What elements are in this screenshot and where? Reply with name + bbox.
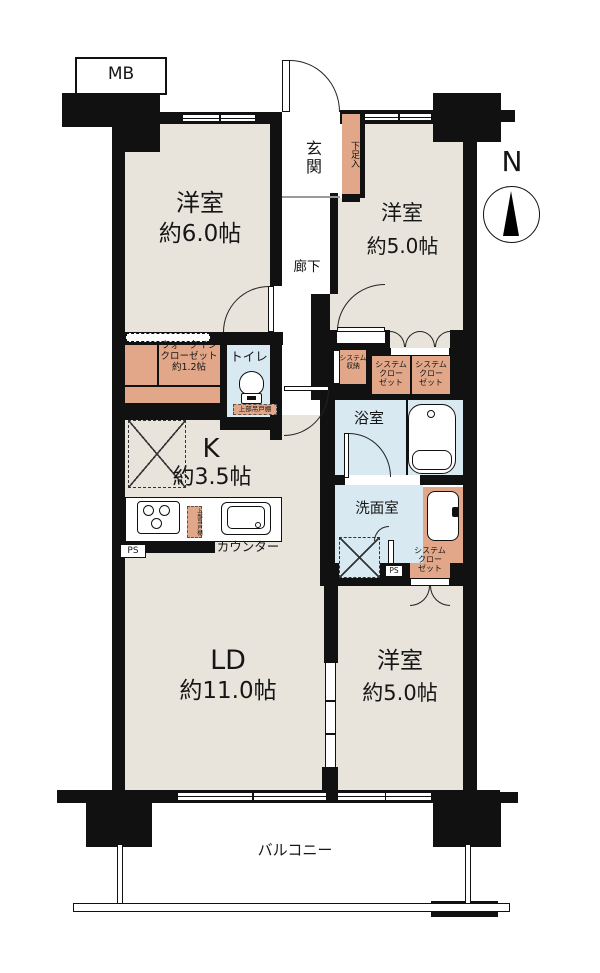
ps-right-label: PS bbox=[385, 567, 403, 576]
living-name: LD bbox=[194, 646, 262, 677]
wall-wic-bottom bbox=[112, 403, 227, 420]
toilet-bowl bbox=[239, 371, 264, 395]
wall-bedroom-ne-bottom-a bbox=[311, 330, 337, 343]
stove-burner-2 bbox=[159, 505, 170, 516]
kitchen-name: K bbox=[195, 435, 227, 465]
sliding-partition bbox=[325, 663, 336, 767]
wash-basin-faucet bbox=[452, 507, 459, 517]
pillar-bottom-right bbox=[433, 803, 501, 847]
pillar-bottom-left bbox=[86, 803, 152, 847]
washroom-door-leaf bbox=[388, 540, 394, 564]
closet-ne-door-strip bbox=[390, 347, 450, 356]
floor-plan: MB 上部吊戸棚 上部吊戸棚 PS PS bbox=[0, 0, 600, 973]
closet-s-door-strip bbox=[410, 578, 450, 586]
wall-shoe-right bbox=[360, 114, 365, 198]
counter-label: カウンター bbox=[212, 540, 284, 554]
bathtub-step bbox=[412, 450, 452, 470]
system-closet-ne-1-label: システム クロー ゼット bbox=[372, 360, 410, 387]
kitchen-size: 約3.5帖 bbox=[158, 465, 266, 490]
bedroom-ne-size: 約5.0帖 bbox=[350, 235, 455, 258]
bedroom-nw-size: 約6.0帖 bbox=[140, 221, 260, 247]
wall-hallway-right-upper bbox=[330, 193, 338, 294]
hallway-label: 廊下 bbox=[284, 260, 330, 275]
system-closet-s-label: システム クロー ゼット bbox=[410, 546, 450, 573]
wall-divider-stub bbox=[322, 767, 338, 792]
washing-machine-space bbox=[339, 537, 380, 578]
living-size: 約11.0帖 bbox=[166, 678, 290, 704]
window-bedroom-s bbox=[338, 791, 431, 802]
balcony-rail-left bbox=[117, 845, 123, 905]
wall-toilet-bottom bbox=[220, 415, 282, 430]
window-bedroom-ne bbox=[365, 112, 431, 122]
bedroom-s-name: 洋室 bbox=[368, 648, 432, 674]
shoe-cabinet-label: 下足入 bbox=[344, 121, 358, 187]
system-closet-ne-2-label: システム クロー ゼット bbox=[412, 360, 450, 387]
compass-north-label: N bbox=[495, 146, 529, 178]
ps-left-label: PS bbox=[120, 546, 146, 556]
bathroom-label: 浴室 bbox=[343, 410, 395, 427]
bathtub-faucet bbox=[427, 410, 435, 418]
wall-bottom-right-stub bbox=[500, 792, 518, 803]
window-bedroom-nw bbox=[183, 113, 255, 123]
balcony-rail-bottom bbox=[73, 903, 510, 912]
entry-door-leaf bbox=[282, 60, 290, 112]
wic-shelf-line bbox=[125, 385, 220, 387]
toilet-label: トイレ bbox=[228, 350, 270, 364]
pillar-top-left-notch bbox=[62, 127, 112, 152]
stove-burner-1 bbox=[143, 505, 154, 516]
pillar-top-right bbox=[433, 93, 501, 142]
wall-hallway-left bbox=[270, 124, 282, 440]
bedroom-ne-name: 洋室 bbox=[362, 202, 442, 226]
balcony-rail-right bbox=[465, 845, 471, 905]
bedroom-s-size: 約5.0帖 bbox=[352, 682, 448, 706]
entrance-step-area bbox=[282, 196, 340, 198]
wall-bedroom-ne-bottom-c bbox=[450, 330, 463, 343]
kitchen-sink-drain bbox=[255, 522, 261, 528]
hallway-floor-upper bbox=[282, 198, 330, 294]
pillar-top-right-stub bbox=[501, 110, 515, 122]
kitchen-hanging-shelf-label: 上部吊戸棚 bbox=[188, 507, 201, 537]
entry-door-arc bbox=[290, 60, 340, 112]
wic-label: ウォークイン クローゼット 約1.2帖 bbox=[155, 341, 223, 373]
toilet-tank-handle bbox=[247, 396, 256, 400]
wall-shoe-bottom bbox=[342, 194, 360, 202]
wall-left bbox=[112, 124, 125, 790]
washroom-label: 洗面室 bbox=[336, 501, 418, 518]
wall-divider-top bbox=[324, 563, 338, 663]
compass-needle-icon bbox=[503, 191, 519, 236]
sliding-partition-tick-2 bbox=[325, 733, 336, 735]
window-living bbox=[178, 791, 326, 802]
wall-right bbox=[463, 142, 477, 790]
bedroom-nw-name: 洋室 bbox=[140, 190, 260, 217]
system-storage-label: システム 収納 bbox=[339, 355, 367, 370]
sliding-partition-tick-1 bbox=[325, 700, 336, 702]
meter-box-label: MB bbox=[75, 65, 167, 84]
wall-hallway-right-lower bbox=[311, 294, 330, 330]
balcony-label: バルコニー bbox=[243, 842, 347, 859]
toilet-hanging-shelf-label: 上部吊戸棚 bbox=[233, 406, 277, 413]
stove-burner-3 bbox=[151, 518, 162, 529]
entrance-label: 玄関 bbox=[297, 128, 321, 188]
